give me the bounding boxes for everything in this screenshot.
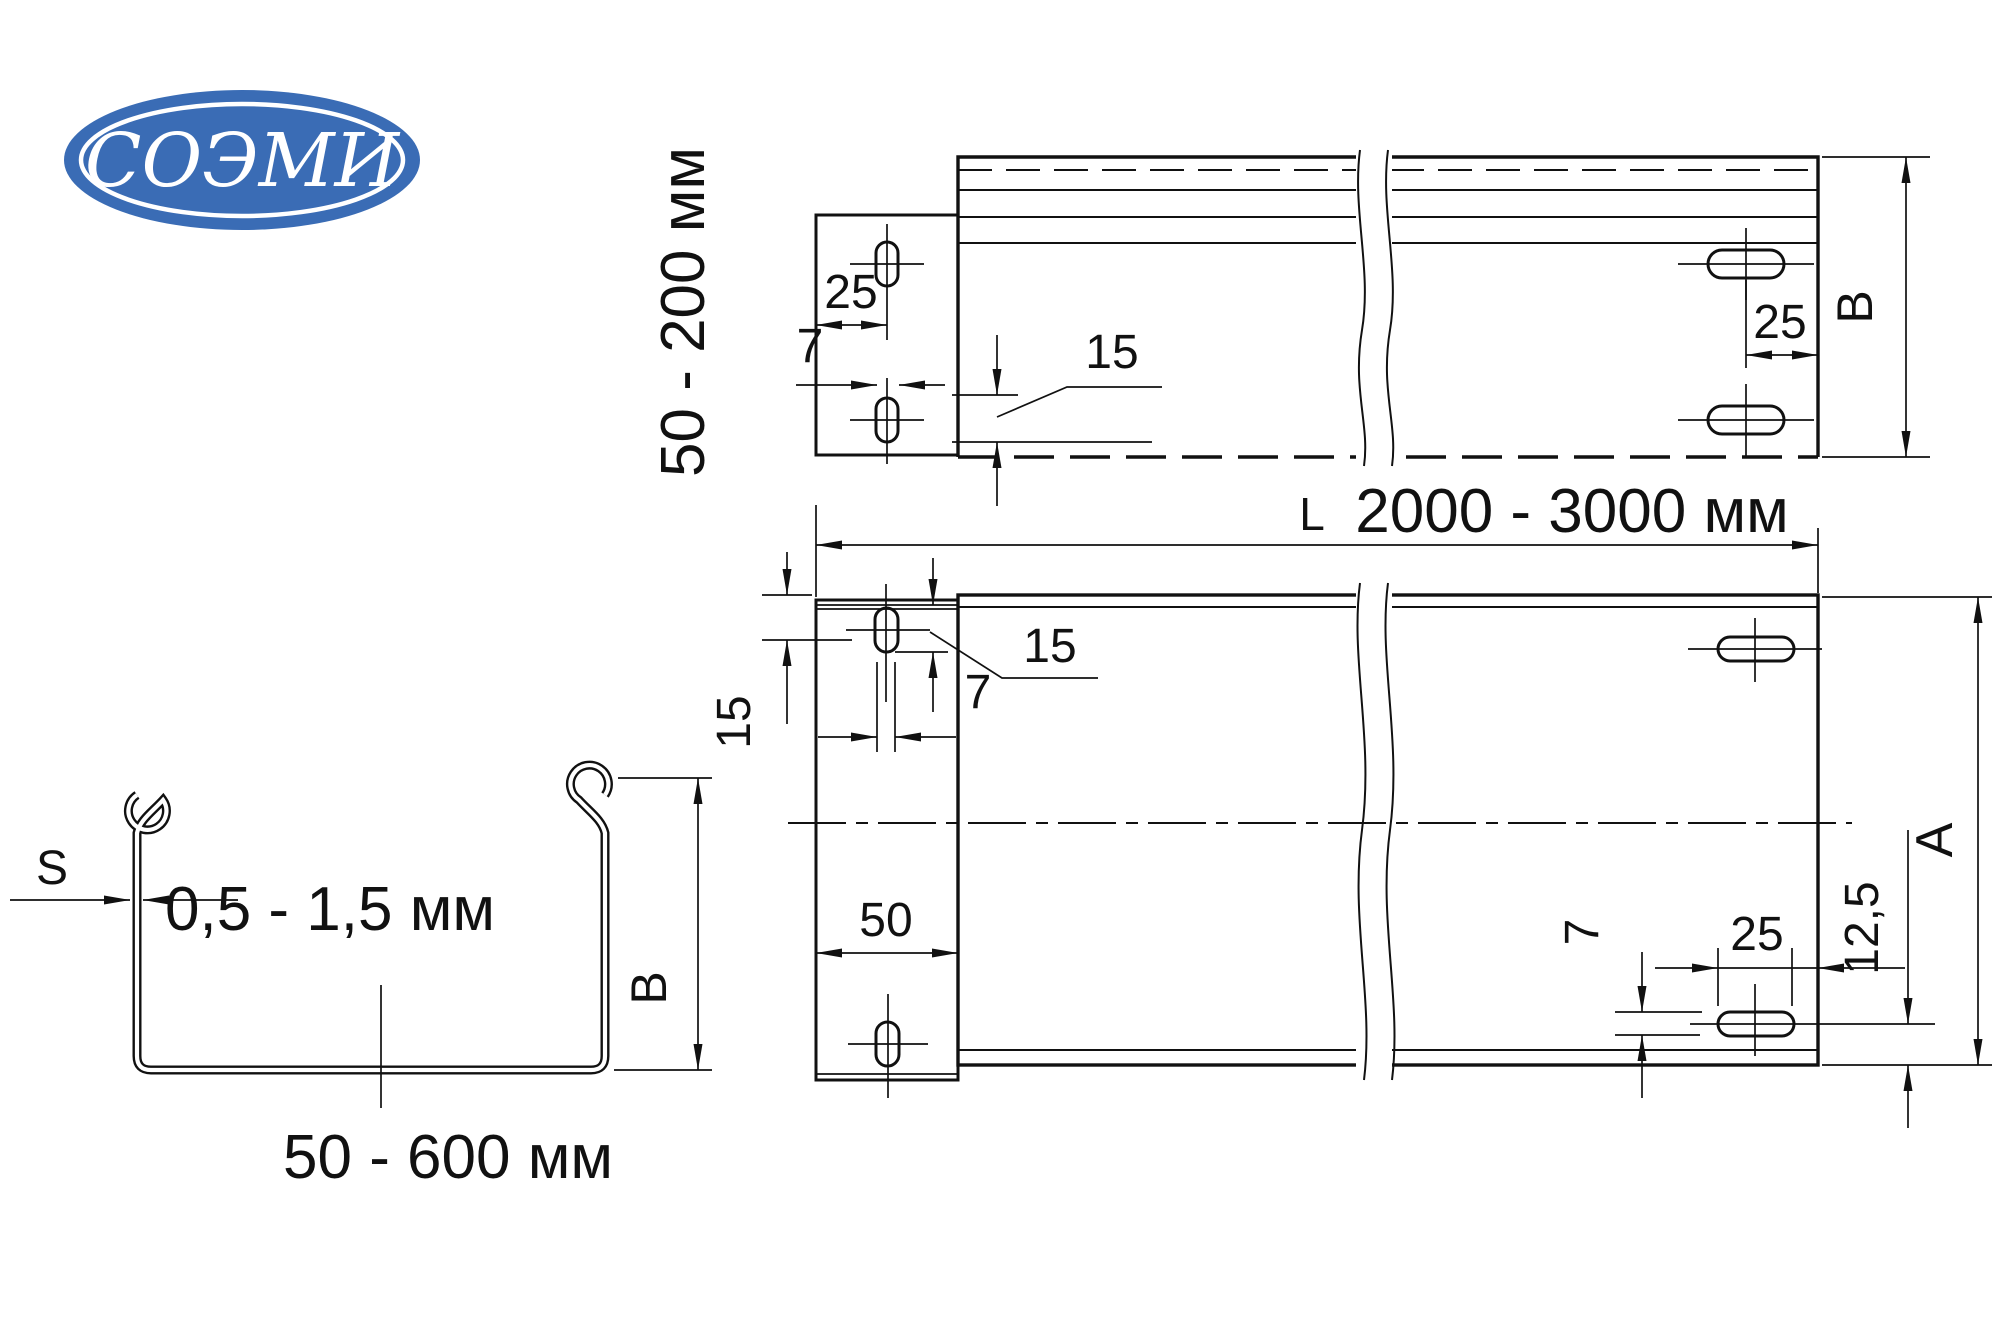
side-dim-25-left-label: 25	[824, 266, 877, 319]
logo-text: СОЭМИ	[85, 118, 401, 204]
side-dim-15-label: 15	[1085, 326, 1138, 379]
side-height-range-label: 50 - 200 мм	[649, 147, 718, 477]
plan-dim-L-prefix: L	[1299, 488, 1325, 540]
plan-dim-15-left-label: 15	[708, 695, 761, 748]
plan-dim-L-label: 2000 - 3000 мм	[1355, 477, 1788, 546]
plan-dim-12-5: 12,5	[1836, 830, 1913, 1128]
section-width-range-label: 50 - 600 мм	[283, 1123, 613, 1192]
side-dim-7-left-label: 7	[797, 320, 824, 373]
logo: СОЭМИ	[64, 90, 420, 230]
plan-dim-7-bottom: 7	[1556, 919, 1702, 1098]
plan-dim-15-left: 15	[708, 552, 852, 749]
section-dim-B: В	[614, 778, 712, 1070]
side-dim-15: 15	[993, 326, 1163, 506]
plan-dim-7-top: 7	[895, 558, 991, 719]
plan-dim-15-leader-label: 15	[1023, 620, 1076, 673]
section-dim-B-label: В	[621, 971, 677, 1004]
plan-dim-A: А	[1822, 597, 1992, 1065]
section-view: S 0,5 - 1,5 мм В 50 - 600 мм	[10, 765, 712, 1192]
section-dim-S: S 0,5 - 1,5 мм	[10, 842, 495, 944]
plan-dim-7-bottom-label: 7	[1556, 919, 1609, 946]
side-dim-7-left: 7	[796, 320, 945, 390]
plan-dim-12-5-label: 12,5	[1836, 881, 1889, 974]
section-dim-S-label: S	[36, 842, 68, 895]
plan-dim-A-label: А	[1906, 822, 1964, 857]
plan-dim-25-bottom-label: 25	[1730, 908, 1783, 961]
side-tab-slots	[850, 224, 924, 464]
drawing-canvas: СОЭМИ 50 - 200 мм	[0, 0, 2000, 1333]
plan-dim-L: L 2000 - 3000 мм	[816, 477, 1818, 597]
plan-view: L 2000 - 3000 мм	[708, 477, 1992, 1128]
side-dim-B-label: В	[1827, 290, 1883, 323]
side-dim-25-right: 25	[1746, 280, 1818, 368]
plan-dim-50-label: 50	[859, 894, 912, 947]
drawing-page: СОЭМИ 50 - 200 мм	[0, 0, 2000, 1333]
plan-dim-15-leader: 15	[930, 620, 1098, 678]
side-dim-B: В	[1822, 157, 1930, 457]
plan-dim-7-top-label: 7	[965, 666, 992, 719]
plan-dim-50: 50	[816, 894, 958, 958]
section-thickness-range-label: 0,5 - 1,5 мм	[165, 875, 495, 944]
side-dim-25-right-label: 25	[1753, 296, 1806, 349]
plan-connector-tab	[816, 600, 958, 1080]
side-view: 50 - 200 мм	[649, 147, 1930, 506]
side-dim-25-left: 25	[816, 266, 887, 330]
